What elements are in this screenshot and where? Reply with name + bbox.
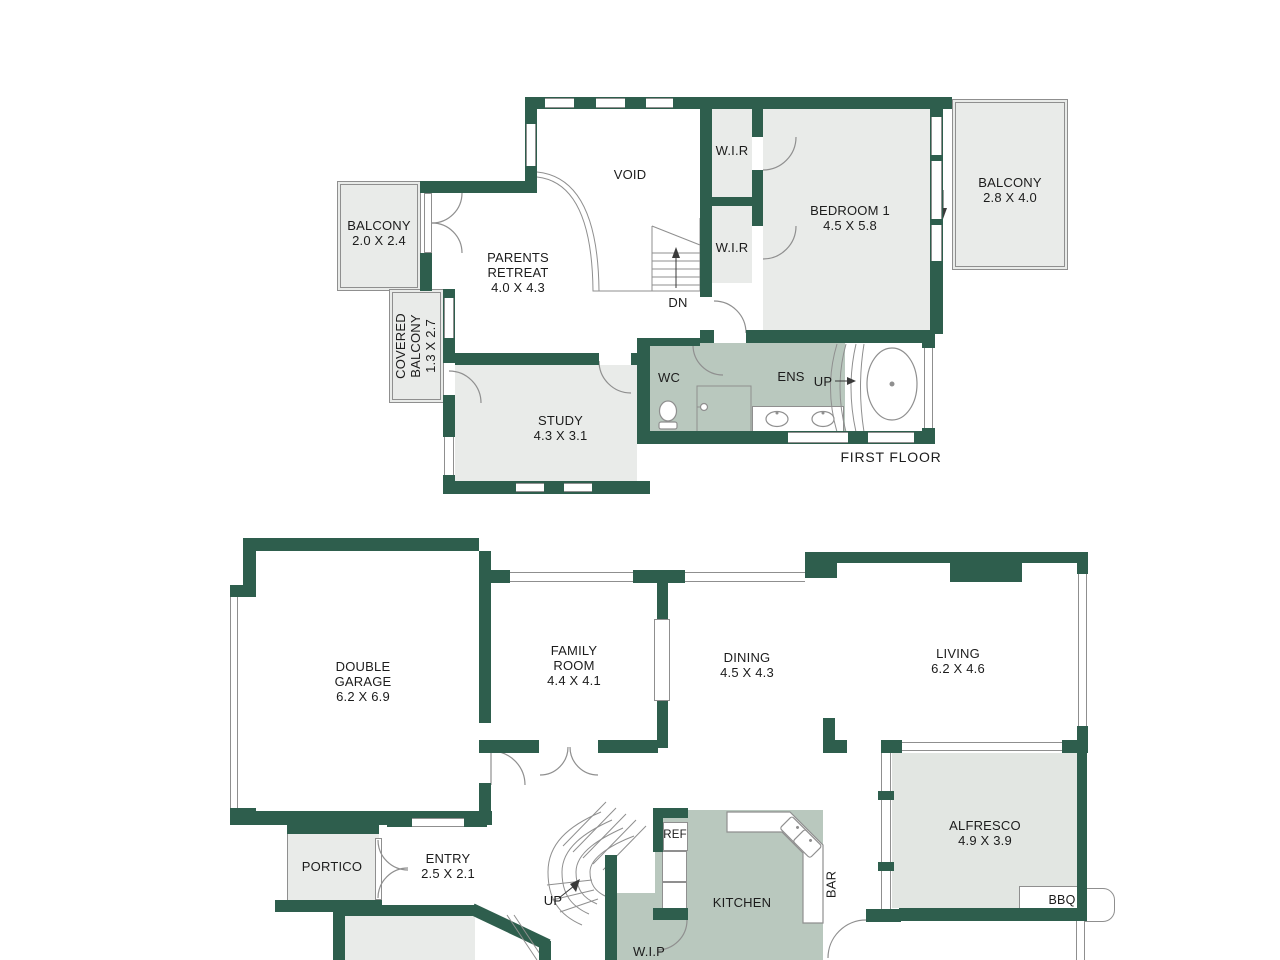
window <box>526 124 536 166</box>
wall-segment <box>878 791 894 800</box>
bbq-unit <box>1085 888 1115 922</box>
wall-segment <box>700 330 714 343</box>
window <box>545 98 574 108</box>
wall-segment <box>866 909 901 922</box>
window <box>412 818 464 827</box>
wall-segment <box>878 862 894 871</box>
window <box>881 800 891 862</box>
window <box>881 871 891 909</box>
wall-segment <box>823 740 847 753</box>
wall-segment <box>657 583 668 619</box>
window <box>516 483 544 492</box>
label-up-first-floor: UP <box>806 374 840 389</box>
wall-segment <box>243 538 256 588</box>
wall-segment <box>922 334 935 348</box>
wall-segment <box>752 170 763 197</box>
wall-segment <box>657 701 668 748</box>
wall-segment <box>443 481 650 494</box>
label-family-room: FAMILYROOM4.4 X 4.1 <box>514 643 634 688</box>
window <box>230 597 238 808</box>
label-void: VOID <box>590 167 670 182</box>
cavity-slider <box>654 619 670 701</box>
label-double-garage: DOUBLEGARAGE6.2 X 6.9 <box>303 659 423 704</box>
floor-plan-canvas: BALCONY2.0 X 2.4 COVEREDBALCONY1.3 X 2.7… <box>0 0 1280 960</box>
window <box>931 225 942 261</box>
wall-segment <box>899 908 1077 921</box>
wall-segment <box>387 812 412 827</box>
label-parents-retreat: PARENTSRETREAT4.0 X 4.3 <box>448 250 588 295</box>
window <box>685 572 805 582</box>
wall-segment <box>1077 552 1088 574</box>
wall-segment <box>950 560 1022 582</box>
wall-segment <box>539 941 551 960</box>
bathtub-icon <box>867 348 917 420</box>
window <box>1076 921 1085 960</box>
label-dn: DN <box>663 295 693 310</box>
wall-segment <box>464 812 487 827</box>
wall-segment <box>598 740 658 753</box>
wall-segment <box>653 908 688 920</box>
window <box>902 742 1062 751</box>
label-balcony-right: BALCONY2.8 X 4.0 <box>950 175 1070 205</box>
stairs-dn-icon <box>652 218 700 291</box>
label-covered-balcony: COVEREDBALCONY1.3 X 2.7 <box>393 286 441 406</box>
wall-segment <box>525 97 952 109</box>
window <box>931 117 942 155</box>
wall-segment <box>479 570 510 583</box>
wall-segment <box>700 197 763 206</box>
label-bedroom-1: BEDROOM 14.5 X 5.8 <box>780 203 920 233</box>
wall-segment <box>333 905 345 960</box>
window <box>510 572 633 582</box>
label-wc: WC <box>647 370 691 385</box>
window <box>868 432 914 443</box>
wall-segment <box>633 570 685 583</box>
wall-segment <box>746 330 932 343</box>
wall-segment <box>479 740 539 753</box>
wall-segment <box>243 538 479 551</box>
label-up-ground-floor: UP <box>537 893 569 908</box>
label-entry: ENTRY2.5 X 2.1 <box>396 851 500 881</box>
window <box>788 432 848 443</box>
window <box>646 98 673 108</box>
wall-segment <box>825 552 837 578</box>
wall-segment <box>653 808 663 852</box>
label-first-floor: FIRST FLOOR <box>826 450 956 465</box>
wall-segment <box>881 740 902 753</box>
wall-segment <box>637 338 700 346</box>
window <box>1078 574 1087 726</box>
wall-segment <box>605 855 617 960</box>
fixtures-overlay <box>0 0 1280 960</box>
label-study: STUDY4.3 X 3.1 <box>488 413 633 443</box>
pantry-cupboard <box>662 851 687 882</box>
window <box>931 161 942 219</box>
label-alfresco: ALFRESCO4.9 X 3.9 <box>913 818 1057 848</box>
wall-segment <box>752 109 763 137</box>
label-portico: PORTICO <box>282 859 382 874</box>
label-wip: W.I.P <box>618 944 680 959</box>
wall-segment <box>752 206 763 226</box>
window <box>444 437 454 475</box>
wall-segment <box>443 395 455 437</box>
wall-segment <box>230 585 256 597</box>
wall-segment <box>455 353 599 365</box>
wall-segment <box>420 181 537 193</box>
wall-segment <box>700 206 712 297</box>
room-bottom-left <box>345 916 475 960</box>
window <box>444 298 454 338</box>
stairs-dn-arrow <box>672 247 680 288</box>
window <box>564 483 592 492</box>
label-bar: BAR <box>824 865 839 905</box>
label-living: LIVING6.2 X 4.6 <box>898 646 1018 676</box>
label-balcony-left: BALCONY2.0 X 2.4 <box>337 218 421 248</box>
vanity-unit <box>752 406 844 433</box>
wall-segment <box>287 823 379 834</box>
window <box>924 348 933 428</box>
label-kitchen: KITCHEN <box>682 895 802 910</box>
wall-segment <box>1077 740 1087 921</box>
wall-segment <box>420 253 432 291</box>
wall-segment <box>700 109 712 205</box>
label-dining: DINING4.5 X 4.3 <box>688 650 806 680</box>
angled-wall-and-door-lines <box>472 909 548 960</box>
window <box>596 98 625 108</box>
window <box>881 753 891 791</box>
wall-segment <box>637 343 650 444</box>
wall-segment <box>333 905 475 916</box>
balcony-door-leaves <box>424 193 432 253</box>
